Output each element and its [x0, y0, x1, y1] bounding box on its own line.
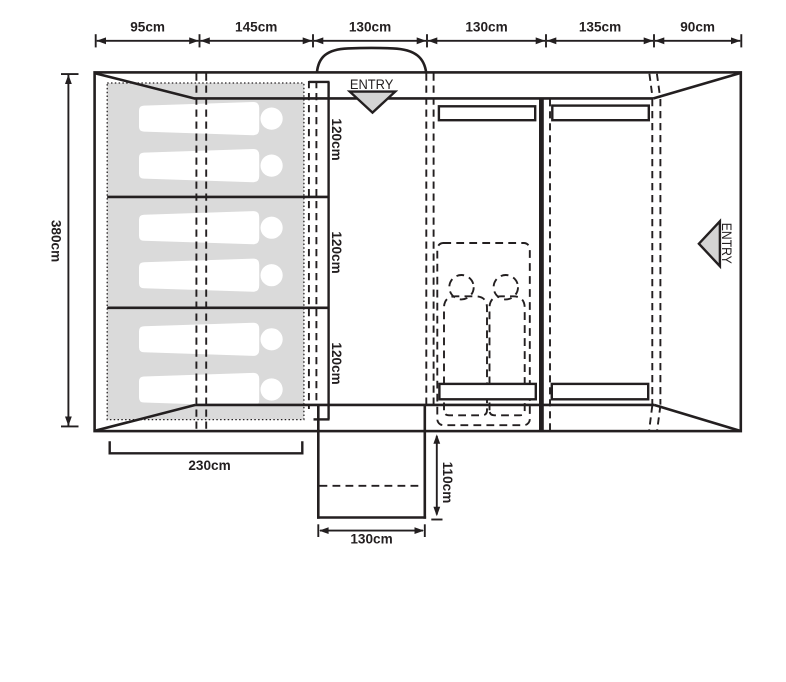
svg-text:110cm: 110cm: [440, 462, 455, 504]
svg-text:145cm: 145cm: [235, 20, 277, 35]
svg-text:120cm: 120cm: [329, 342, 344, 384]
svg-text:380cm: 380cm: [49, 220, 64, 262]
svg-text:130cm: 130cm: [349, 20, 391, 35]
svg-text:120cm: 120cm: [329, 231, 344, 273]
svg-text:135cm: 135cm: [579, 20, 621, 35]
svg-text:230cm: 230cm: [188, 458, 230, 473]
svg-text:ENTRY: ENTRY: [719, 223, 734, 264]
svg-text:95cm: 95cm: [130, 20, 165, 35]
svg-text:90cm: 90cm: [680, 20, 715, 35]
svg-text:ENTRY: ENTRY: [350, 77, 394, 92]
svg-text:120cm: 120cm: [329, 118, 344, 160]
svg-text:130cm: 130cm: [350, 532, 392, 547]
svg-text:130cm: 130cm: [465, 20, 507, 35]
